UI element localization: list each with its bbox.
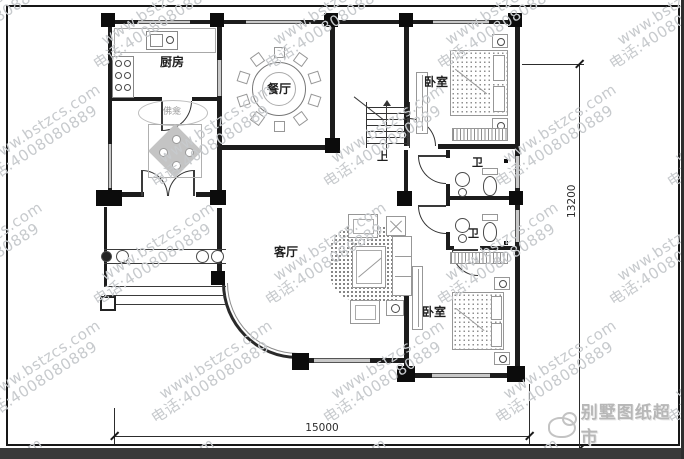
porch-corner-pier — [100, 296, 116, 311]
column — [397, 191, 412, 206]
column — [210, 190, 226, 205]
window — [217, 60, 222, 96]
stair-arrow-icon — [383, 100, 391, 106]
porch-step-line — [104, 295, 226, 296]
wardrobe — [412, 266, 423, 330]
dresser — [450, 252, 508, 264]
kitchen-faucet — [166, 36, 174, 44]
foyer-tile — [148, 124, 202, 178]
dining-chair — [250, 51, 265, 66]
porch-step-line — [104, 304, 226, 305]
nightstand — [494, 352, 510, 365]
coffee-table — [352, 246, 386, 288]
wall — [446, 150, 450, 158]
window — [515, 156, 520, 188]
window — [108, 144, 112, 188]
porch-step-line — [104, 286, 226, 287]
bed — [452, 292, 504, 350]
sofa-long — [392, 236, 412, 296]
wall — [446, 184, 450, 206]
stove-burner — [124, 60, 131, 67]
dining-chair — [274, 121, 285, 132]
window — [515, 210, 520, 242]
floorplan-page: 厨房 佛龛 餐厅 上 卧室 — [0, 0, 684, 459]
column — [397, 366, 415, 382]
porch-railing-line — [104, 263, 226, 264]
bottom-edge-bar — [0, 448, 684, 459]
staircase — [366, 102, 410, 148]
dim-line-bottom — [114, 436, 530, 437]
stove-burner — [115, 84, 122, 91]
wall — [104, 207, 107, 287]
porch-column-round — [101, 251, 112, 262]
column — [211, 271, 225, 285]
nightstand — [494, 277, 510, 290]
shrine-label: 佛龛 — [163, 108, 181, 117]
wall — [217, 145, 333, 150]
porch-column-round — [211, 250, 224, 263]
bed-fold-line — [455, 69, 487, 94]
column — [101, 13, 115, 27]
side-table-plant — [386, 216, 406, 236]
stove-burner — [115, 60, 122, 67]
column — [509, 191, 523, 205]
room-label-bedroom-top: 卧室 — [424, 76, 448, 88]
window — [432, 373, 490, 378]
foyer-tile-dot — [172, 135, 181, 144]
foyer-tile-dot — [185, 148, 194, 157]
foyer-tile-dot — [159, 148, 168, 157]
armchair — [350, 300, 380, 324]
bath-sink-pedestal — [458, 188, 467, 197]
floor-drain — [504, 159, 508, 163]
room-label-dining: 餐厅 — [267, 83, 291, 95]
porch-column-round — [116, 250, 129, 263]
stairs-up-label: 上 — [377, 151, 388, 162]
stove-burner — [124, 72, 131, 79]
wall — [330, 20, 335, 150]
bed-pillow — [491, 323, 502, 347]
dim-label-width: 15000 — [114, 423, 530, 434]
bed — [450, 50, 508, 116]
bath-top-door-arc — [418, 156, 446, 184]
dim-line-right — [579, 64, 580, 450]
dining-chair — [274, 47, 285, 58]
wall — [446, 196, 518, 200]
bed-fold-line — [456, 308, 485, 331]
armchair — [348, 214, 378, 238]
wall — [217, 208, 222, 276]
window — [138, 20, 190, 24]
door-leaf — [452, 249, 478, 251]
column — [325, 138, 340, 153]
door-leaf — [418, 155, 446, 157]
foyer-tile-dot — [172, 161, 181, 170]
stove-burner — [115, 72, 122, 79]
dim-ext-line — [522, 64, 584, 65]
dresser — [452, 128, 508, 141]
window — [246, 20, 300, 24]
porch-column-round — [196, 250, 209, 263]
toilet-tank — [482, 168, 498, 175]
column — [210, 13, 224, 27]
floorplan: 厨房 佛龛 餐厅 上 卧室 — [0, 0, 684, 459]
nightstand — [492, 34, 508, 48]
wall — [192, 97, 219, 101]
dining-chair — [307, 93, 321, 107]
column — [96, 190, 122, 206]
toilet-bowl — [483, 222, 497, 242]
door-leaf — [418, 205, 446, 207]
brand-mascot-icon — [546, 410, 575, 436]
dining-chair — [250, 111, 265, 126]
bath-bottom-door-arc — [418, 206, 446, 234]
window — [314, 358, 370, 363]
wall — [438, 144, 520, 149]
column — [507, 366, 525, 382]
column — [324, 13, 338, 27]
floor-drain — [504, 241, 508, 245]
dining-chair — [293, 51, 308, 66]
bed-pillow — [493, 86, 505, 112]
column — [399, 13, 413, 27]
dining-chair — [293, 111, 308, 126]
window — [433, 20, 489, 24]
room-label-living: 客厅 — [274, 246, 298, 258]
room-label-bath-top: 卫 — [472, 157, 483, 168]
toilet-tank — [482, 214, 498, 221]
dining-chair — [237, 71, 251, 85]
column — [292, 353, 309, 370]
brand-logo: 别墅图纸超市 — [546, 398, 684, 448]
dim-label-height: 13200 — [567, 177, 578, 225]
stove-burner — [124, 84, 131, 91]
room-label-bedroom-bottom: 卧室 — [422, 306, 446, 318]
room-label-kitchen: 厨房 — [160, 56, 184, 68]
curved-wall-inner-line — [227, 283, 298, 354]
dining-chair — [307, 71, 321, 85]
wall — [404, 150, 408, 194]
bath-sink-pedestal — [458, 234, 467, 243]
wall — [217, 150, 222, 192]
room-label-bath-bottom: 卫 — [468, 228, 479, 239]
bath-sink — [455, 172, 470, 187]
bed-pillow — [493, 55, 505, 81]
toilet-bowl — [483, 176, 497, 196]
side-table — [386, 300, 404, 316]
door-leaf — [141, 170, 143, 196]
wall — [480, 246, 520, 250]
column — [508, 13, 522, 27]
kitchen-sink-basin — [150, 34, 163, 47]
brand-name: 别墅图纸超市 — [581, 398, 684, 448]
dining-chair — [237, 93, 251, 107]
bed-pillow — [491, 296, 502, 320]
